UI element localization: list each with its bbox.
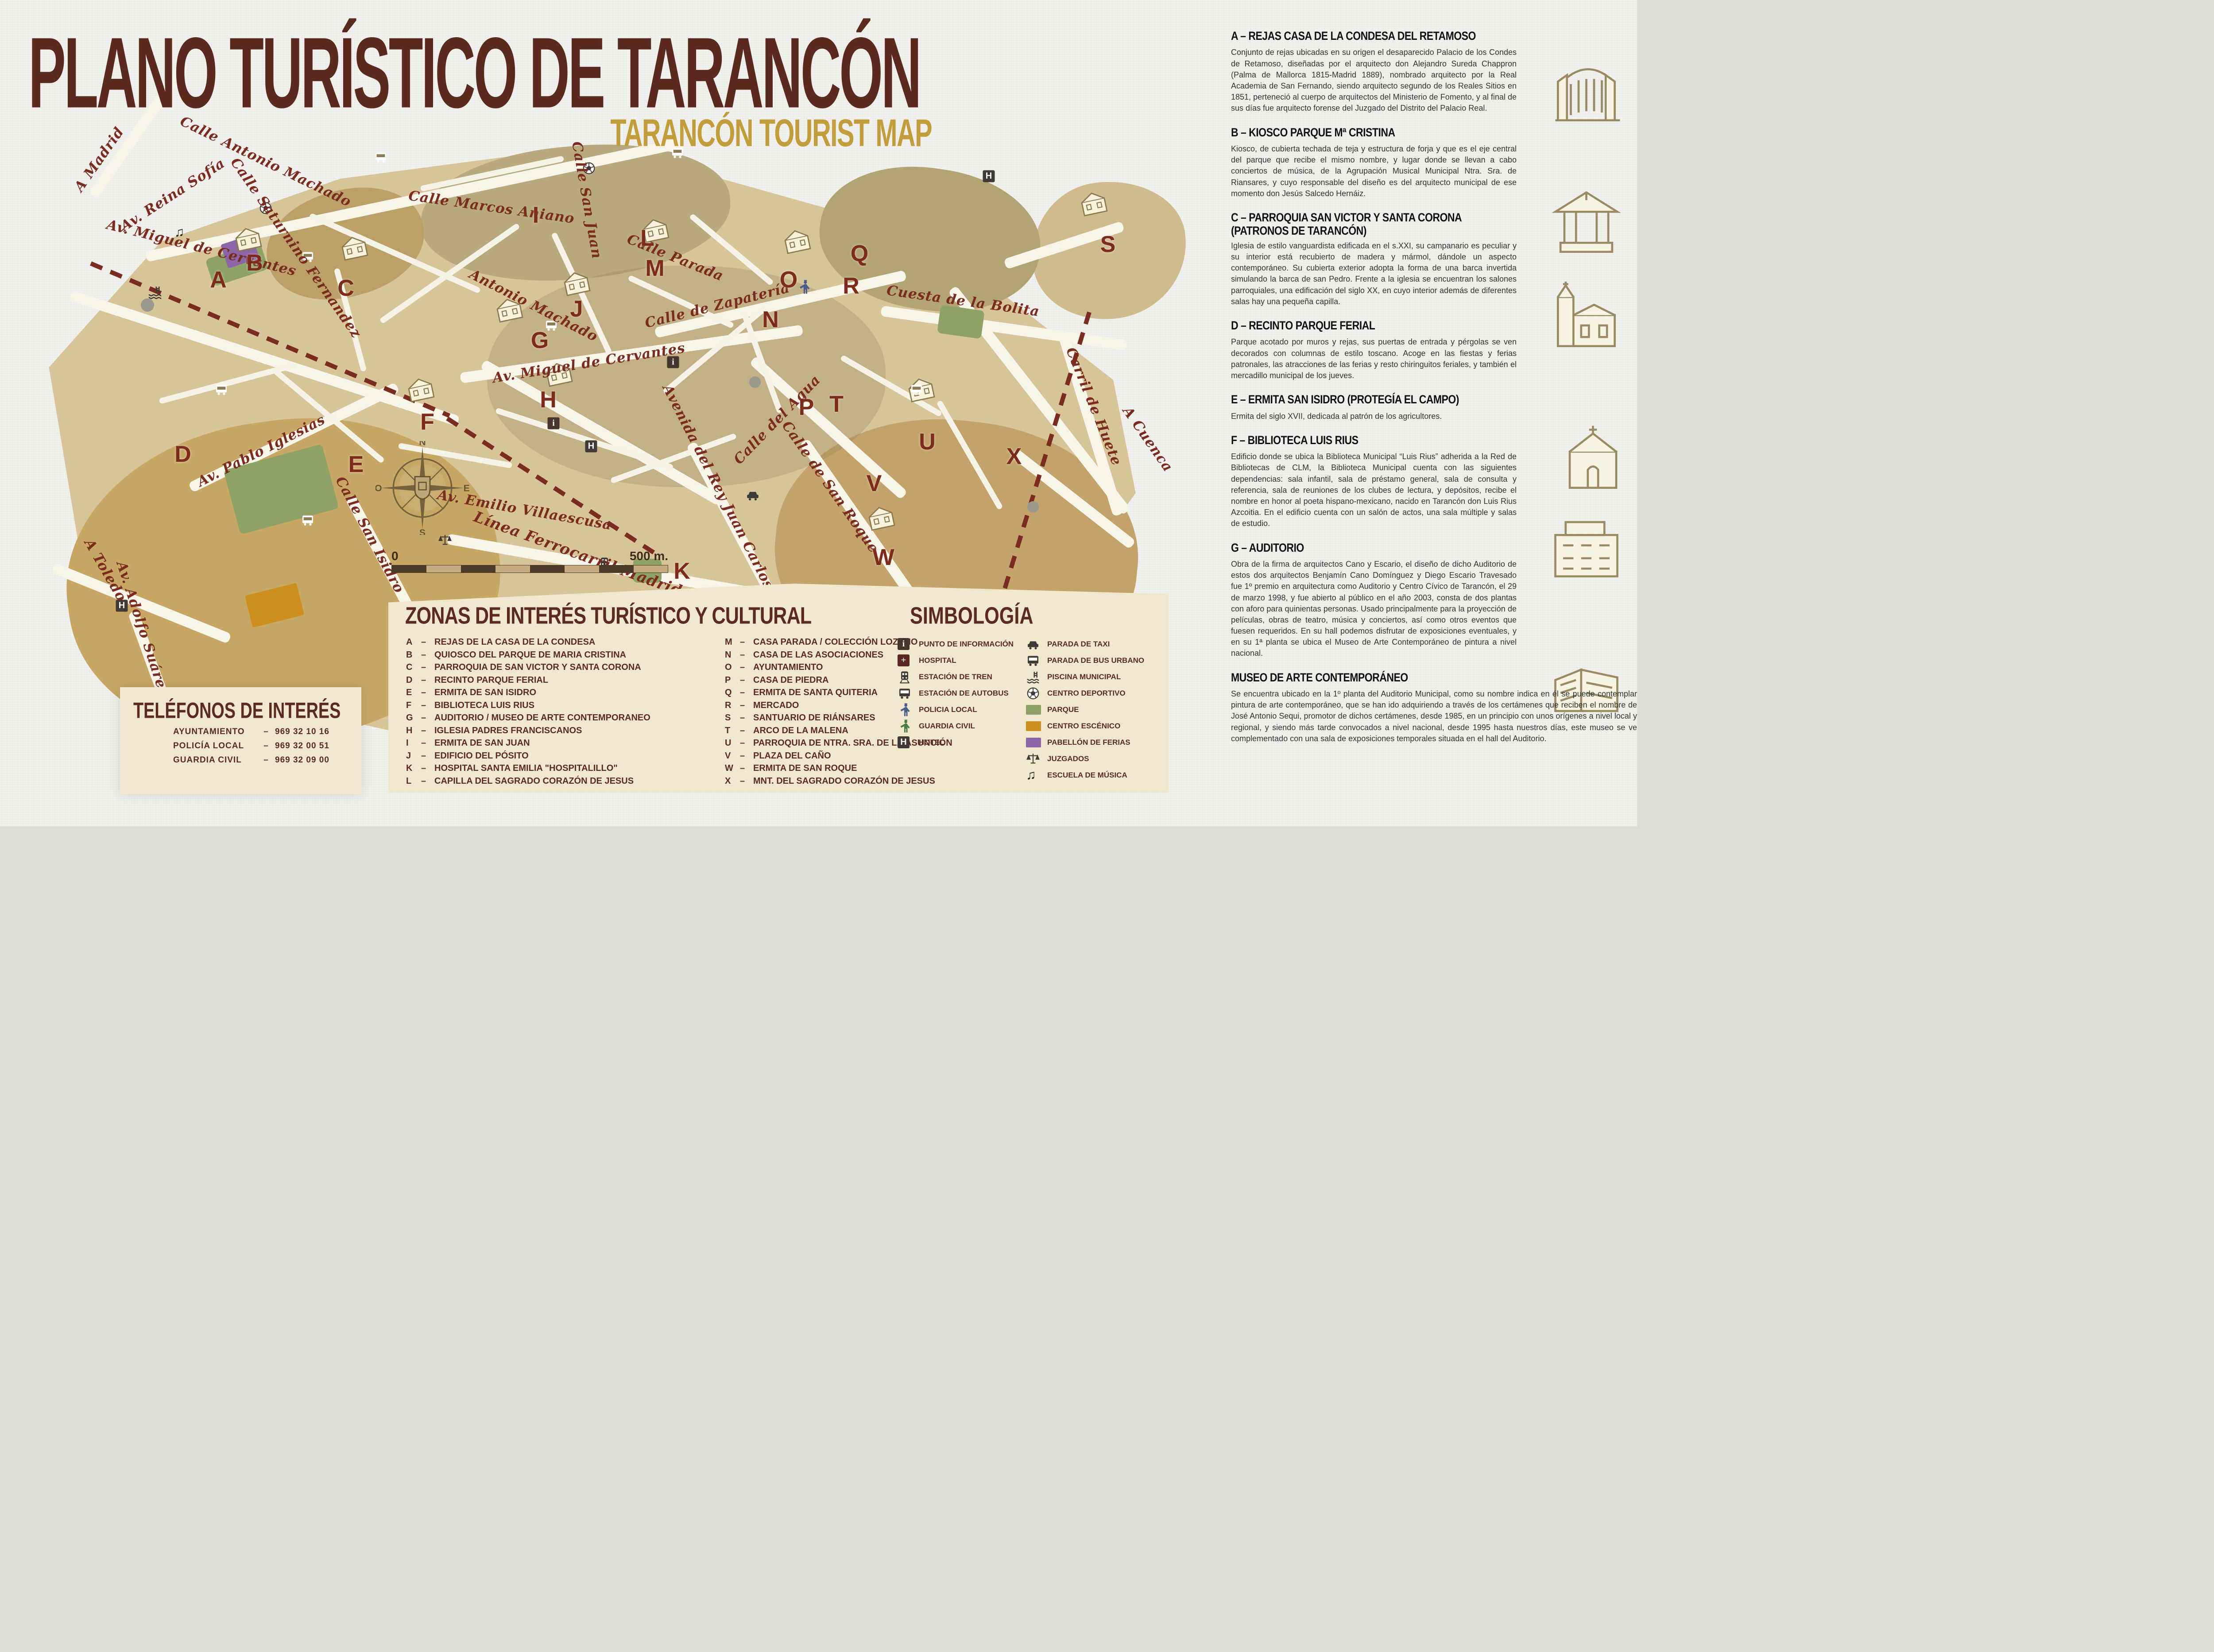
- bus-stop-icon: [301, 513, 315, 527]
- zona-name: PARROQUIA DE SAN VICTOR Y SANTA CORONA: [434, 661, 641, 674]
- building-sketch: [401, 370, 440, 409]
- poi-descriptions-panel: A – REJAS CASA DE LA CONDESA DEL RETAMOS…: [1231, 29, 1637, 822]
- scale-start-label: 0: [391, 549, 399, 563]
- map-marker-n: N: [762, 306, 779, 333]
- poi-section: G – AUDITORIOObra de la firma de arquite…: [1231, 541, 1637, 659]
- zona-name: CASA DE PIEDRA: [753, 674, 828, 687]
- simbologia-item: PABELLÓN DE FERIAS: [1026, 734, 1168, 751]
- zona-name: QUIOSCO DEL PARQUE DE MARIA CRISTINA: [434, 649, 626, 662]
- map-marker-w: W: [872, 544, 894, 571]
- simbologia-label: CENTRO ESCÉNICO: [1047, 722, 1120, 731]
- zonas-list-left: A–REJAS DE LA CASA DE LA CONDESAB–QUIOSC…: [406, 636, 716, 787]
- sports-icon: [1026, 686, 1047, 700]
- map-marker-i: I: [533, 202, 539, 228]
- map-marker-o: O: [780, 267, 797, 293]
- color-swatch: [1026, 738, 1047, 747]
- zona-name: RECINTO PARQUE FERIAL: [434, 674, 548, 687]
- telefono-row: GUARDIA CIVIL–969 32 09 00: [173, 755, 361, 765]
- telefono-number: 969 32 10 16: [275, 727, 329, 737]
- zona-name: ERMITA DE SAN ROQUE: [753, 762, 857, 775]
- hotel-icon: H: [898, 736, 919, 748]
- zona-letter: X: [725, 775, 740, 788]
- zona-name: ERMITA DE SAN ISIDRO: [434, 686, 536, 699]
- zona-item: L–CAPILLA DEL SAGRADO CORAZÓN DE JESUS: [406, 775, 716, 788]
- zona-name: CASA PARADA / COLECCIÓN LOZANO: [753, 636, 917, 649]
- zona-letter: K: [406, 762, 421, 775]
- poi-section: E – ERMITA SAN ISIDRO (PROTEGÍA EL CAMPO…: [1231, 393, 1637, 422]
- poi-section-body: Obra de la firma de arquitectos Cano y E…: [1231, 559, 1517, 659]
- building-sketch: [778, 222, 817, 261]
- zona-letter: H: [406, 724, 421, 737]
- hotel-icon: H: [585, 441, 597, 453]
- zona-letter: A: [406, 636, 421, 649]
- poi-section-body: Kiosco, de cubierta techada de teja y es…: [1231, 143, 1517, 199]
- map-marker-l: L: [640, 225, 654, 251]
- simbologia-item: HHOTEL: [898, 734, 1044, 751]
- map-marker-f: F: [420, 409, 434, 435]
- poi-section-body: Iglesia de estilo vanguardista edificada…: [1231, 240, 1517, 307]
- simbologia-item: CENTRO DEPORTIVO: [1026, 685, 1168, 701]
- taxi-icon: [745, 487, 760, 503]
- map-marker-q: Q: [851, 240, 868, 267]
- simbologia-item: GUARDIA CIVIL: [898, 718, 1044, 734]
- zona-letter: U: [725, 737, 740, 750]
- bus-icon: [898, 686, 919, 700]
- simbologia-title: SIMBOLOGÍA: [910, 601, 1033, 629]
- map-marker-c: C: [337, 275, 354, 302]
- simbologia-item: iPUNTO DE INFORMACIÓN: [898, 636, 1044, 652]
- compass-rose: N S E O: [375, 441, 469, 535]
- simbologia-label: PARADA DE BUS URBANO: [1047, 656, 1144, 665]
- building-sketch: [335, 228, 374, 267]
- zona-name: MNT. DEL SAGRADO CORAZÓN DE JESUS: [753, 775, 935, 788]
- zona-name: PLAZA DEL CAÑO: [753, 750, 831, 762]
- phones-rows: AYUNTAMIENTO–969 32 10 16POLICÍA LOCAL–9…: [120, 727, 361, 765]
- bus-urbano-icon: [1026, 654, 1047, 668]
- bus-stop-icon: [910, 383, 924, 397]
- map-marker-p: P: [799, 394, 814, 421]
- zona-letter: W: [725, 762, 740, 775]
- zona-name: REJAS DE LA CASA DE LA CONDESA: [434, 636, 595, 649]
- zona-item: I–ERMITA DE SAN JUAN: [406, 737, 716, 750]
- map-marker-v: V: [867, 470, 882, 497]
- roundabout: [749, 376, 761, 388]
- zona-letter: D: [406, 674, 421, 687]
- zona-name: HOSPITAL SANTA EMILIA "HOSPITALILLO": [434, 762, 618, 775]
- info-icon: i: [548, 418, 560, 429]
- poi-section: D – RECINTO PARQUE FERIALParque acotado …: [1231, 319, 1637, 381]
- simbologia-item: PARADA DE TAXI: [1026, 636, 1168, 652]
- map-marker-r: R: [843, 273, 859, 299]
- zona-item: C–PARROQUIA DE SAN VICTOR Y SANTA CORONA: [406, 661, 716, 674]
- zona-item: X–MNT. DEL SAGRADO CORAZÓN DE JESUS: [725, 775, 1035, 788]
- zona-item: H–IGLESIA PADRES FRANCISCANOS: [406, 724, 716, 737]
- phones-box: TELÉFONOS DE INTERÉS AYUNTAMIENTO–969 32…: [120, 687, 361, 794]
- zona-letter: O: [725, 661, 740, 674]
- phones-title: TELÉFONOS DE INTERÉS: [133, 698, 339, 723]
- simbologia-label: JUZGADOS: [1047, 754, 1089, 763]
- simbologia-item: PARQUE: [1026, 701, 1168, 718]
- simbologia-label: PUNTO DE INFORMACIÓN: [919, 640, 1014, 649]
- roundabout: [141, 298, 154, 312]
- zona-name: EDIFICIO DEL PÓSITO: [434, 750, 529, 762]
- map-marker-x: X: [1006, 443, 1022, 470]
- simbologia-label: HOTEL: [919, 738, 944, 747]
- zona-name: BIBLIOTECA LUIS RIUS: [434, 699, 534, 712]
- zona-letter: E: [406, 686, 421, 699]
- poi-section: B – KIOSCO PARQUE Mª CRISTINAKiosco, de …: [1231, 126, 1637, 199]
- scale-end-label: 500 m.: [630, 549, 668, 563]
- tourist-map-poster: ABCDEFGHIJKLMNOPQRSTUVWXA MadridAv. Rein…: [0, 0, 1637, 826]
- zona-letter: G: [406, 712, 421, 724]
- pool-icon: [1026, 670, 1047, 684]
- zona-letter: B: [406, 649, 421, 662]
- map-marker-a: A: [210, 267, 227, 293]
- zona-letter: J: [406, 750, 421, 762]
- zona-name: CAPILLA DEL SAGRADO CORAZÓN DE JESUS: [434, 775, 634, 788]
- zona-name: ERMITA DE SAN JUAN: [434, 737, 530, 750]
- simbologia-label: ESCUELA DE MÚSICA: [1047, 771, 1127, 780]
- poi-section-body: Parque acotado por muros y rejas, sus pu…: [1231, 337, 1517, 381]
- poi-section: MUSEO DE ARTE CONTEMPORÁNEOSe encuentra …: [1231, 671, 1637, 744]
- zona-name: MERCADO: [753, 699, 799, 712]
- simbologia-item: POLICIA LOCAL: [898, 701, 1044, 718]
- legend-band: ZONAS DE INTERÉS TURÍSTICO Y CULTURAL A–…: [388, 584, 1169, 793]
- scales-icon: [1026, 752, 1047, 766]
- simbologia-label: PABELLÓN DE FERIAS: [1047, 738, 1130, 747]
- poi-section: F – BIBLIOTECA LUIS RIUSEdificio donde s…: [1231, 433, 1637, 530]
- hotel-icon: H: [983, 170, 995, 182]
- zona-letter: I: [406, 737, 421, 750]
- color-swatch: [1026, 721, 1047, 731]
- header: PLANO TURÍSTICO DE TARANCÓN: [28, 15, 1233, 103]
- simbologia-item: ESTACIÓN DE TREN: [898, 669, 1044, 685]
- map-marker-t: T: [829, 391, 844, 418]
- telefono-row: POLICÍA LOCAL–969 32 00 51: [173, 741, 361, 751]
- poi-section-heading: MUSEO DE ARTE CONTEMPORÁNEO: [1231, 671, 1637, 684]
- map-marker-e: E: [348, 451, 364, 478]
- music-icon: ♫: [1026, 769, 1047, 782]
- hospital-icon: +: [898, 654, 919, 666]
- poi-section: C – PARROQUIA SAN VICTOR Y SANTA CORONA …: [1231, 211, 1637, 307]
- simbologia-item: ♫ESCUELA DE MÚSICA: [1026, 767, 1168, 783]
- simbologia-label: PARADA DE TAXI: [1047, 640, 1110, 649]
- scale-bar-segments: [391, 565, 668, 573]
- simbologia-item: ESTACIÓN DE AUTOBUS: [898, 685, 1044, 701]
- info-icon: i: [898, 638, 919, 650]
- zona-letter: N: [725, 649, 740, 662]
- zona-name: ERMITA DE SANTA QUITERIA: [753, 686, 878, 699]
- zona-letter: R: [725, 699, 740, 712]
- zona-item: W–ERMITA DE SAN ROQUE: [725, 762, 1035, 775]
- zona-item: F–BIBLIOTECA LUIS RIUS: [406, 699, 716, 712]
- bus-stop-icon: [214, 383, 228, 397]
- telefono-name: AYUNTAMIENTO: [173, 727, 257, 737]
- poi-section-heading: A – REJAS CASA DE LA CONDESA DEL RETAMOS…: [1231, 29, 1637, 43]
- police-icon: [898, 703, 919, 717]
- poi-section-heading: G – AUDITORIO: [1231, 541, 1637, 554]
- poi-section-heading: B – KIOSCO PARQUE Mª CRISTINA: [1231, 126, 1637, 139]
- zona-item: G–AUDITORIO / MUSEO DE ARTE CONTEMPORANE…: [406, 712, 716, 724]
- telefono-row: AYUNTAMIENTO–969 32 10 16: [173, 727, 361, 737]
- map-marker-g: G: [531, 327, 549, 354]
- zona-letter: C: [406, 661, 421, 674]
- simbologia-label: ESTACIÓN DE TREN: [919, 673, 992, 681]
- zona-item: J–EDIFICIO DEL PÓSITO: [406, 750, 716, 762]
- simbologia-label: CENTRO DEPORTIVO: [1047, 689, 1126, 698]
- poi-section: A – REJAS CASA DE LA CONDESA DEL RETAMOS…: [1231, 29, 1637, 114]
- map-marker-k: K: [673, 558, 690, 584]
- telefono-name: POLICÍA LOCAL: [173, 741, 257, 751]
- map-marker-b: B: [246, 250, 263, 276]
- simbologia-list-right: PARADA DE TAXIPARADA DE BUS URBANOPISCIN…: [1026, 636, 1168, 783]
- zona-letter: Q: [725, 686, 740, 699]
- map-marker-u: U: [919, 429, 936, 455]
- color-swatch: [1026, 705, 1047, 715]
- simbologia-item: PISCINA MUNICIPAL: [1026, 669, 1168, 685]
- compass-s: S: [419, 528, 426, 535]
- simbologia-item: JUZGADOS: [1026, 751, 1168, 767]
- zona-letter: P: [725, 674, 740, 687]
- map-marker-d: D: [174, 441, 191, 468]
- page-subtitle: TARANCÓN TOURIST MAP: [209, 111, 932, 155]
- zona-item: V–PLAZA DEL CAÑO: [725, 750, 1035, 762]
- simbologia-label: HOSPITAL: [919, 656, 956, 665]
- map-marker-j: J: [570, 296, 583, 322]
- zona-letter: M: [725, 636, 740, 649]
- poi-section-body: Se encuentra ubicado en la 1º planta del…: [1231, 689, 1637, 744]
- zona-name: IGLESIA PADRES FRANCISCANOS: [434, 724, 582, 737]
- zona-name: AUDITORIO / MUSEO DE ARTE CONTEMPORANEO: [434, 712, 650, 724]
- zona-letter: S: [725, 712, 740, 724]
- poi-section-heading: C – PARROQUIA SAN VICTOR Y SANTA CORONA …: [1231, 211, 1637, 238]
- poi-section-body: Ermita del siglo XVII, dedicada al patró…: [1231, 411, 1517, 422]
- guardia-icon: [898, 719, 919, 733]
- zona-letter: F: [406, 699, 421, 712]
- map-marker-h: H: [540, 387, 557, 413]
- zona-name: AYUNTAMIENTO: [753, 661, 823, 674]
- map-marker-s: S: [1100, 231, 1116, 258]
- simbologia-label: GUARDIA CIVIL: [919, 722, 975, 731]
- poi-section-body: Conjunto de rejas ubicadas en su origen …: [1231, 47, 1517, 114]
- simbologia-item: CENTRO ESCÉNICO: [1026, 718, 1168, 734]
- map-scale-bar: 0 500 m.: [391, 549, 668, 573]
- poi-section-heading: D – RECINTO PARQUE FERIAL: [1231, 319, 1637, 332]
- telefono-number: 969 32 00 51: [275, 741, 329, 751]
- police-icon: [797, 279, 812, 294]
- zona-item: K–HOSPITAL SANTA EMILIA "HOSPITALILLO": [406, 762, 716, 775]
- simbologia-label: PISCINA MUNICIPAL: [1047, 673, 1121, 681]
- simbologia-list-left: iPUNTO DE INFORMACIÓN+HOSPITALESTACIÓN D…: [898, 636, 1044, 751]
- zona-item: A–REJAS DE LA CASA DE LA CONDESA: [406, 636, 716, 649]
- telefono-name: GUARDIA CIVIL: [173, 755, 257, 765]
- poi-section-heading: E – ERMITA SAN ISIDRO (PROTEGÍA EL CAMPO…: [1231, 393, 1637, 406]
- compass-o: O: [375, 483, 382, 493]
- zonas-title: ZONAS DE INTERÉS TURÍSTICO Y CULTURAL: [405, 601, 811, 629]
- simbologia-item: PARADA DE BUS URBANO: [1026, 652, 1168, 669]
- taxi-icon: [1026, 637, 1047, 651]
- poi-section-heading: F – BIBLIOTECA LUIS RIUS: [1231, 433, 1637, 447]
- zona-name: CASA DE LAS ASOCIACIONES: [753, 649, 883, 662]
- zona-letter: V: [725, 750, 740, 762]
- simbologia-label: PARQUE: [1047, 705, 1079, 714]
- zona-letter: L: [406, 775, 421, 788]
- pool-icon: [147, 285, 163, 300]
- zona-item: E–ERMITA DE SAN ISIDRO: [406, 686, 716, 699]
- train-icon: [898, 670, 919, 684]
- compass-n: N: [419, 441, 426, 448]
- zona-name: ARCO DE LA MALENA: [753, 724, 848, 737]
- building-sketch: [1074, 184, 1113, 223]
- roundabout: [1027, 501, 1039, 513]
- simbologia-label: POLICIA LOCAL: [919, 705, 977, 714]
- zona-letter: T: [725, 724, 740, 737]
- zona-item: B–QUIOSCO DEL PARQUE DE MARIA CRISTINA: [406, 649, 716, 662]
- map-marker-m: M: [645, 255, 664, 282]
- poi-section-body: Edificio donde se ubica la Biblioteca Mu…: [1231, 451, 1517, 529]
- telefono-number: 969 32 09 00: [275, 755, 329, 765]
- simbologia-item: +HOSPITAL: [898, 652, 1044, 669]
- zona-name: SANTUARIO DE RIÁNSARES: [753, 712, 875, 724]
- zona-item: D–RECINTO PARQUE FERIAL: [406, 674, 716, 687]
- scales-icon: [438, 533, 452, 547]
- simbologia-label: ESTACIÓN DE AUTOBUS: [919, 689, 1009, 698]
